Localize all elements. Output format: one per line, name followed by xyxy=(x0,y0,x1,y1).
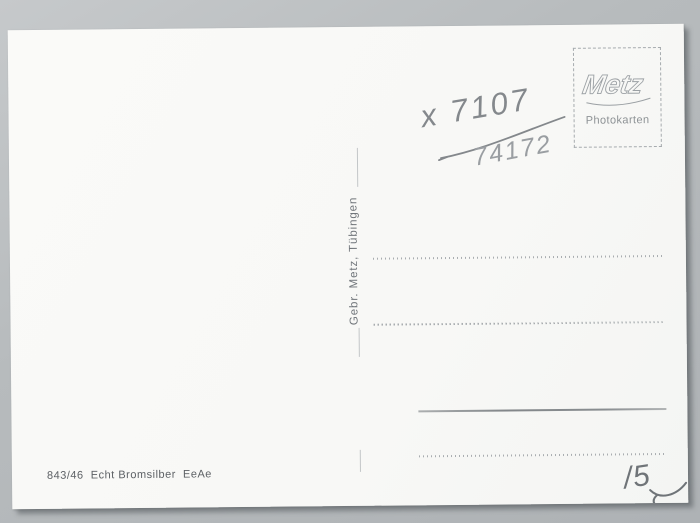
handwritten-number-top: x 7107 xyxy=(416,81,533,134)
handwritten-number-bottom: 74172 xyxy=(471,130,554,172)
handwritten-corner-mark: /5 xyxy=(619,459,653,496)
scan-background: Metz Photokarten Gebr. Metz, Tübingen 84… xyxy=(0,0,700,523)
corner-mark-tick xyxy=(654,495,658,505)
corner-mark-flourish xyxy=(650,483,686,496)
handwriting-layer: x 7107 74172 /5 xyxy=(8,24,689,509)
postcard-back: Metz Photokarten Gebr. Metz, Tübingen 84… xyxy=(8,24,689,509)
